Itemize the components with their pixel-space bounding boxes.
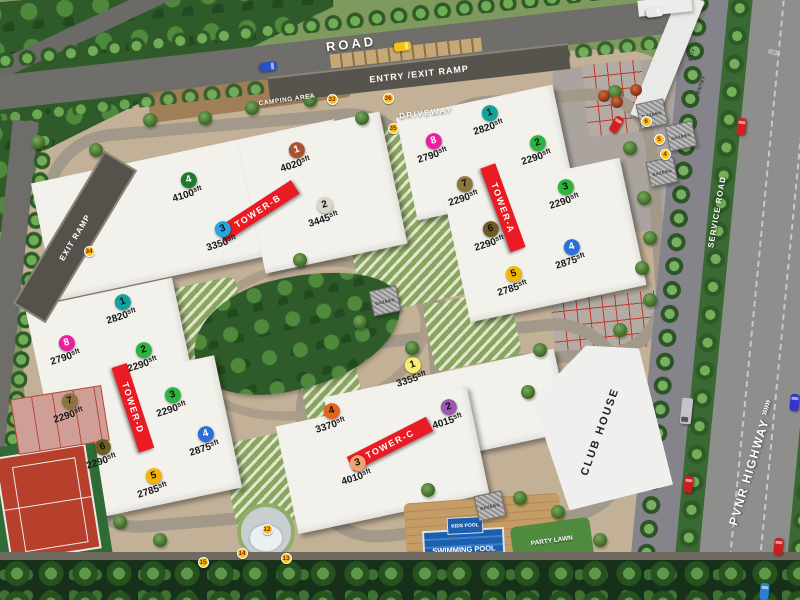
amenity-marker-35[interactable]: 35 xyxy=(388,123,399,134)
amenity-marker-4[interactable]: 4 xyxy=(660,149,671,160)
amenity-marker-15[interactable]: 15 xyxy=(198,557,209,568)
amenity-marker-5[interactable]: 5 xyxy=(654,134,665,145)
amenity-marker-13[interactable]: 13 xyxy=(281,553,292,564)
amenity-marker-14[interactable]: 14 xyxy=(237,548,248,559)
amenity-marker-34[interactable]: 34 xyxy=(84,246,95,257)
amenity-marker-6[interactable]: 6 xyxy=(641,116,652,127)
amenity-marker-12[interactable]: 12 xyxy=(262,524,273,535)
amenity-marker-36[interactable]: 36 xyxy=(383,93,394,104)
amenity-marker-33[interactable]: 33 xyxy=(327,94,338,105)
site-master-plan: CLUB HOUSE SWIMMING POOL KIDS POOL PARTY… xyxy=(0,0,800,600)
